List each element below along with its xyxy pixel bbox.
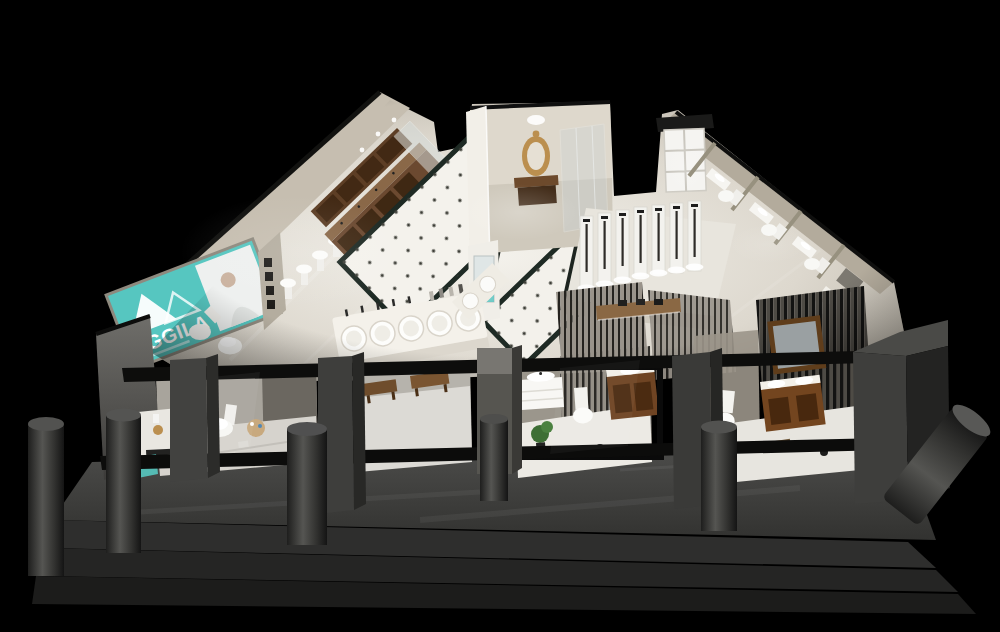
- showroom-3d-render: AGGILA: [0, 0, 1000, 632]
- bollard-3: [287, 422, 327, 545]
- table-item: [258, 424, 262, 428]
- bollard-1: [28, 417, 64, 576]
- vase: [153, 414, 159, 423]
- bollard-2: [106, 409, 141, 554]
- glass-reflection: [550, 360, 640, 454]
- wood-double-vanity: [760, 375, 826, 432]
- pier-1: [170, 354, 220, 482]
- gold-ornament: [153, 425, 163, 435]
- bollard-4: [480, 414, 508, 501]
- showroom-render-root: AGGILA: [0, 0, 1000, 632]
- bollard-5: [701, 421, 737, 532]
